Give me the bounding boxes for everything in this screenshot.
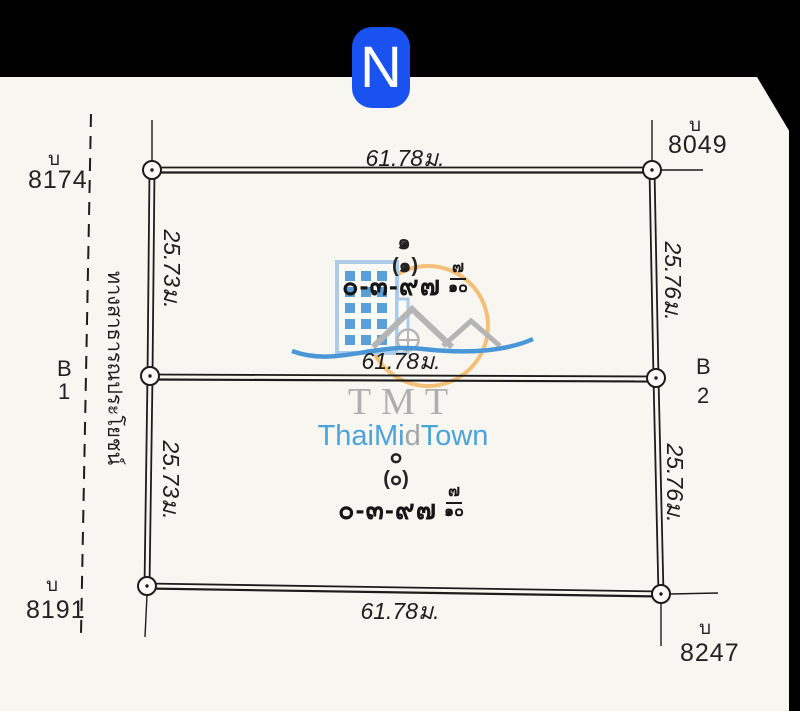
- fraction-numerator: ๗: [450, 260, 466, 280]
- fraction-denominator: ๑๐: [448, 280, 468, 297]
- marker-label-top-right-number: 8049: [668, 131, 728, 160]
- marker-label-middle-right-prefix: B: [696, 354, 711, 380]
- upper-parcel-area-fraction: ๗ ๑๐: [448, 260, 468, 297]
- land-survey-diagram: N: [0, 0, 800, 711]
- public-road-label: ทางสาธารณประโยชน์: [102, 248, 126, 488]
- marker-label-top-left-number: 8174: [28, 166, 88, 195]
- dimension-bottom-width: 61.78ม.: [340, 594, 460, 630]
- lower-parcel-area-fraction: ๗ ๑๐: [444, 484, 464, 521]
- upper-parcel-area-rai: ๐-๓-๙๗: [342, 264, 441, 307]
- upper-parcel-area: ๐-๓-๙๗ ๗ ๑๐: [342, 264, 468, 307]
- dimension-upper-left-depth: 25.73ม.: [161, 214, 183, 324]
- marker-label-middle-right-number: 2: [697, 383, 709, 409]
- fraction-numerator: ๗: [446, 484, 462, 504]
- dimension-lower-right-depth: 25.76ม.: [664, 428, 686, 538]
- lower-parcel-area-rai: ๐-๓-๙๗: [338, 488, 437, 531]
- dimension-lower-left-depth: 25.73ม.: [160, 425, 182, 535]
- marker-label-middle-left-number: 1: [58, 379, 70, 405]
- fraction-denominator: ๑๐: [444, 504, 464, 521]
- dimension-top-width: 61.78ม.: [345, 141, 465, 177]
- dimension-middle-width: 61.78ม.: [341, 344, 461, 380]
- marker-label-bottom-left-number: 8191: [26, 596, 86, 625]
- dimension-upper-right-depth: 25.76ม.: [662, 226, 684, 336]
- watermark-name-part: Town: [421, 420, 489, 452]
- lower-parcel-area: ๐-๓-๙๗ ๗ ๑๐: [338, 488, 464, 531]
- watermark-abbr: TMT: [330, 380, 476, 424]
- marker-label-bottom-right-number: 8247: [680, 639, 740, 668]
